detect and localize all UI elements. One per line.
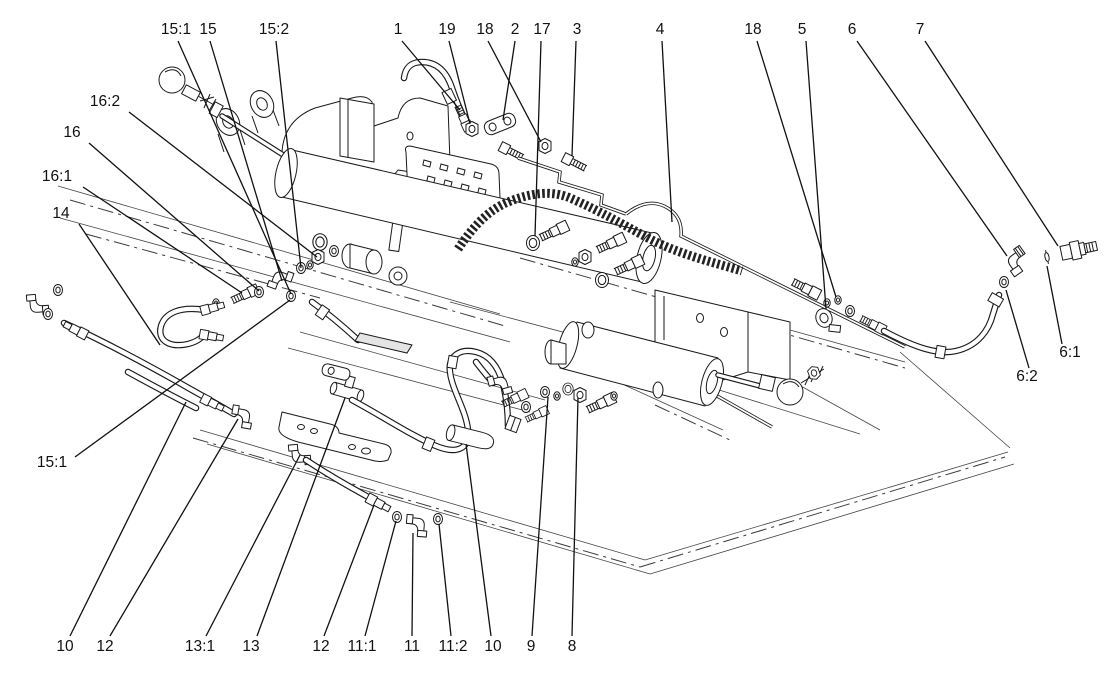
callout-label-10: 10 xyxy=(56,638,74,655)
callout-leader-8 xyxy=(572,398,578,636)
callout-label-19: 19 xyxy=(438,21,455,38)
tee-fitting-13 xyxy=(321,363,368,403)
hex-nut-16-2 xyxy=(312,250,324,265)
callout-label-12: 12 xyxy=(96,638,113,655)
clamp-tab xyxy=(321,363,351,381)
callout-leader-10 xyxy=(466,444,491,636)
callout-label-9: 9 xyxy=(527,638,536,655)
hex-nut-19 xyxy=(466,122,478,137)
callout-label-11:2: 11:2 xyxy=(438,638,467,655)
callout-label-11:1: 11:1 xyxy=(347,638,376,655)
o-ring-9 xyxy=(541,387,550,398)
callout-leader-11 xyxy=(412,533,413,636)
callout-label-1: 1 xyxy=(394,21,403,38)
callout-label-15:1: 15:1 xyxy=(161,21,191,38)
callout-label-6:1: 6:1 xyxy=(1059,344,1081,361)
callout-label-15: 15 xyxy=(199,21,216,38)
callout-leader-6 xyxy=(857,41,1007,256)
ball-joint-left xyxy=(159,67,185,93)
callouts: 15:11515:211918217341856716:21616:11415:… xyxy=(37,21,1081,655)
callout-label-17: 17 xyxy=(533,21,550,38)
callout-label-15:2: 15:2 xyxy=(259,21,289,38)
o-ring xyxy=(846,306,855,317)
lift-ear-right xyxy=(246,86,279,121)
o-ring xyxy=(522,402,531,413)
o-ring xyxy=(54,285,63,296)
callout-label-11: 11 xyxy=(404,638,420,655)
hose-fitting-12 xyxy=(365,493,392,514)
callout-leader-3 xyxy=(572,41,576,156)
callout-leader-6:2 xyxy=(1006,290,1029,368)
left-fitting-cluster xyxy=(213,246,358,341)
quick-connect-7 xyxy=(1059,237,1098,262)
elbow-fitting-11 xyxy=(405,514,428,537)
loop-hose-10 xyxy=(352,351,521,451)
callout-leader-12 xyxy=(110,419,238,636)
callout-label-13:1: 13:1 xyxy=(185,638,215,655)
callout-label-2: 2 xyxy=(511,21,520,38)
o-ring-11-1 xyxy=(393,512,402,523)
callout-label-6:2: 6:2 xyxy=(1016,368,1038,385)
pin-6-1 xyxy=(1044,250,1051,265)
callout-label-14: 14 xyxy=(52,205,70,222)
callout-label-15:1: 15:1 xyxy=(37,454,67,471)
washer xyxy=(554,392,560,400)
grommet xyxy=(563,383,573,395)
o-ring-6-2 xyxy=(1000,277,1009,288)
hose-fitting xyxy=(62,320,89,340)
o-ring xyxy=(44,309,53,320)
bolt-3 xyxy=(561,153,588,173)
callout-leader-11:2 xyxy=(439,524,451,636)
exploded-parts-diagram: 15:11515:211918217341856716:21616:11415:… xyxy=(0,0,1110,683)
callout-label-3: 3 xyxy=(573,21,582,38)
callout-label-8: 8 xyxy=(568,638,577,655)
o-ring-11-2 xyxy=(434,514,443,525)
callout-label-4: 4 xyxy=(656,21,665,38)
callout-leader-18 xyxy=(757,41,836,297)
callout-label-7: 7 xyxy=(916,21,925,38)
callout-leader-6:1 xyxy=(1047,266,1062,344)
callout-leader-10 xyxy=(70,402,186,636)
callout-label-16:1: 16:1 xyxy=(42,168,72,185)
callout-leader-2 xyxy=(503,41,515,120)
callout-label-16: 16 xyxy=(63,124,80,141)
washer xyxy=(611,392,617,400)
clamp-plate-2 xyxy=(483,112,518,137)
hose-fitting xyxy=(199,329,224,342)
callout-label-6: 6 xyxy=(848,21,857,38)
hex-nut xyxy=(579,250,591,265)
parts-diagram-canvas: 15:11515:211918217341856716:21616:11415:… xyxy=(0,0,1110,683)
callout-leader-15 xyxy=(210,41,282,281)
callout-leader-12 xyxy=(324,505,374,636)
ball-joint-right xyxy=(777,379,803,405)
callout-label-13: 13 xyxy=(242,638,259,655)
callout-leader-7 xyxy=(925,41,1058,246)
callout-label-10: 10 xyxy=(484,638,502,655)
u-hose-16 xyxy=(160,300,225,345)
grommet xyxy=(596,273,609,288)
callout-leader-15:1 xyxy=(75,300,290,457)
callout-label-5: 5 xyxy=(798,21,807,38)
mid-fitting-cluster xyxy=(476,362,549,424)
callout-leader-9 xyxy=(532,397,548,636)
washer-cluster-8-9 xyxy=(541,383,618,415)
callout-leader-13:1 xyxy=(206,455,300,636)
elbow-fitting-6 xyxy=(1001,245,1032,276)
o-ring-15-1 xyxy=(287,291,296,302)
o-ring xyxy=(330,246,339,257)
callout-label-16:2: 16:2 xyxy=(90,93,120,110)
callout-leader-11:1 xyxy=(365,521,396,636)
callout-leader-5 xyxy=(806,41,826,309)
washer xyxy=(572,258,578,266)
hex-nut-8 xyxy=(574,388,586,403)
callout-label-18: 18 xyxy=(476,21,493,38)
callout-label-12: 12 xyxy=(312,638,329,655)
callout-leader-4 xyxy=(662,41,672,222)
callout-label-18: 18 xyxy=(744,21,761,38)
grommet-17 xyxy=(527,236,540,251)
hose-6-assembly xyxy=(790,237,1098,359)
